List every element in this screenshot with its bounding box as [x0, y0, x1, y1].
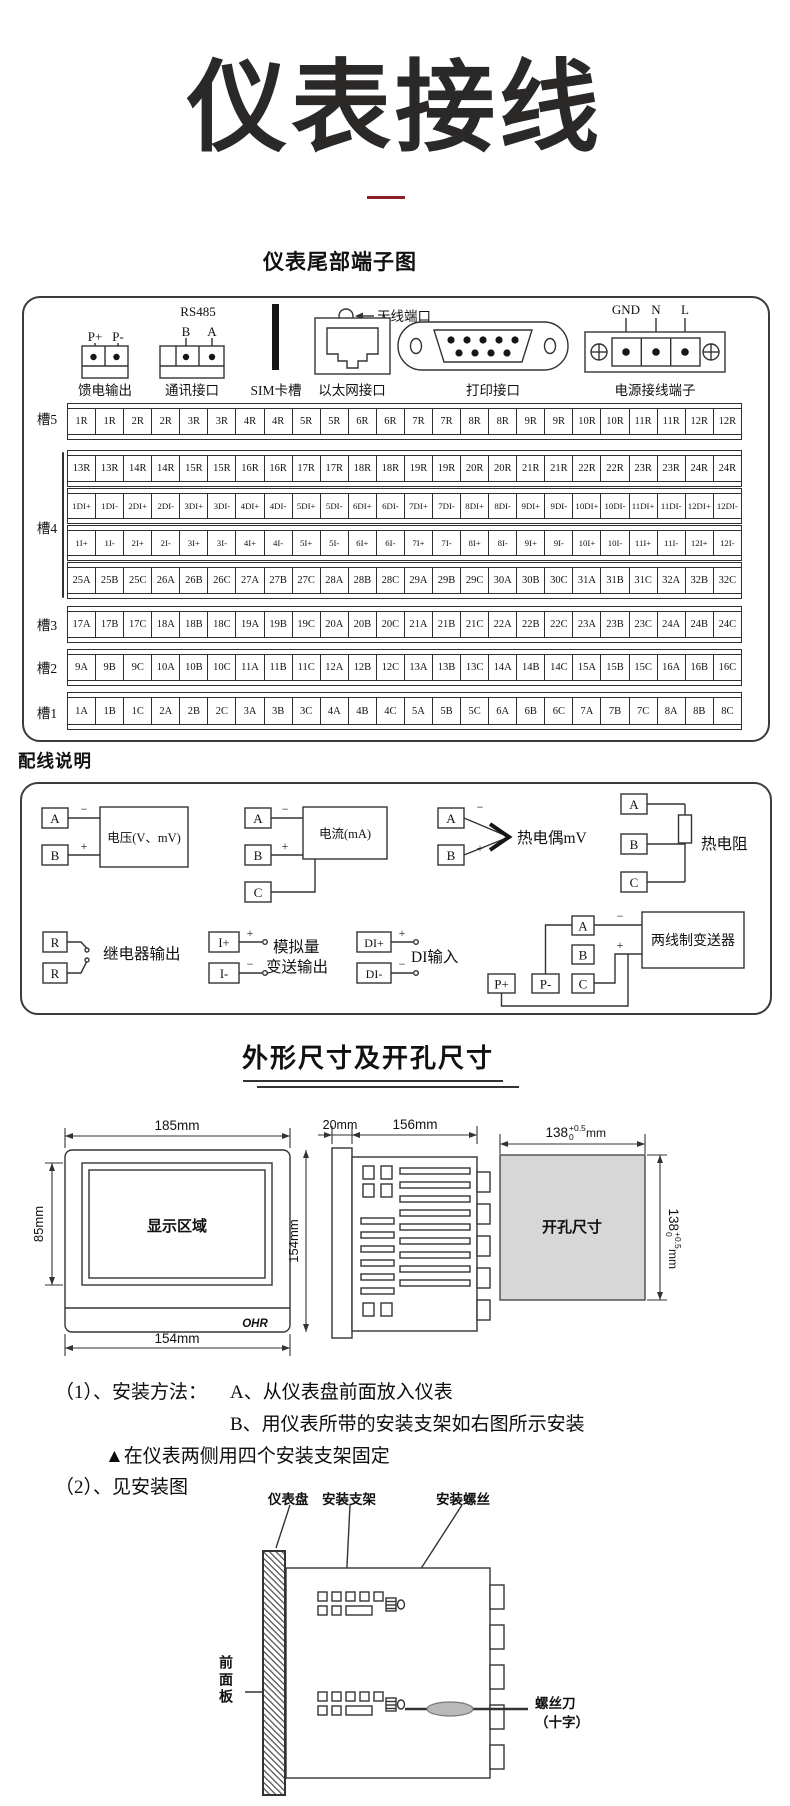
terminal-cell: 22A — [489, 612, 517, 637]
terminal-cell: 7R — [433, 409, 461, 434]
install-step1-prefix: （1）、安装方法： — [55, 1377, 207, 1404]
terminal-cell: 6C — [545, 698, 573, 724]
terminal-box-label: C — [630, 875, 639, 890]
install-step1-a: A、从仪表盘前面放入仪表 — [230, 1377, 453, 1404]
terminal-cell: 18C — [208, 612, 236, 637]
terminal-box-label: I+ — [218, 936, 229, 950]
terminal-cell: 1A — [68, 698, 96, 724]
dimension-drawings: 显示区域 OHR 185mm 85mm 154mm 154mm 20m — [15, 1100, 775, 1362]
terminal-cell: 13R — [96, 456, 124, 481]
terminal-cell: 7DI- — [433, 494, 461, 518]
terminal-cell: 20R — [461, 456, 489, 481]
diagram-label: 两线制变送器 — [651, 933, 735, 949]
terminal-cell: 8A — [658, 698, 686, 724]
power-caption: 电源接线端子 — [615, 382, 696, 398]
terminal-cell: 2C — [208, 698, 236, 724]
terminal-cell: 1B — [96, 698, 124, 724]
terminal-cell: 20C — [377, 612, 405, 637]
terminal-cell: 3A — [236, 698, 264, 724]
rear-hooks — [490, 1585, 504, 1769]
terminal-cell: 24R — [686, 456, 714, 481]
terminal-cell: 17A — [68, 612, 96, 637]
terminal-cell: 6DI+ — [349, 494, 377, 518]
terminal-strip-slot3: 17A17B17C18A18B18C19A19B19C20A20B20C21A2… — [67, 606, 742, 643]
terminal-cell: 12C — [377, 655, 405, 680]
terminal-cell: 21A — [405, 612, 433, 637]
heading-underline — [243, 1080, 503, 1082]
terminal-cell: 17C — [124, 612, 152, 637]
terminal-cell: 2B — [180, 698, 208, 724]
terminal-cell: 13C — [461, 655, 489, 680]
terminal-cell: 9A — [68, 655, 96, 680]
terminal-cell: 2DI- — [152, 494, 180, 518]
sim-caption: SIM卡槽 — [250, 383, 301, 398]
terminal-cell: 14R — [124, 456, 152, 481]
pin-label: P- — [112, 329, 124, 344]
terminal-cell: 5DI- — [321, 494, 349, 518]
terminal-box-label: B — [51, 848, 60, 863]
terminal-cell: 7C — [630, 698, 658, 724]
terminal-cell: 11DI- — [658, 494, 686, 518]
terminal-cell: 15R — [208, 456, 236, 481]
terminal-box-label: DI- — [366, 967, 383, 981]
terminal-cell: 25A — [68, 568, 96, 593]
terminal-cell: 16A — [658, 655, 686, 680]
svg-text:138: 138 — [545, 1125, 568, 1140]
pin-label: P+ — [88, 329, 103, 344]
sim-slot — [272, 304, 279, 370]
flange-dimension: 20mm — [323, 1118, 358, 1132]
terminal-cell: 23C — [630, 612, 658, 637]
terminal-cell: 12I- — [714, 531, 741, 555]
terminal-cell: 13R — [68, 456, 96, 481]
terminal-cell: 21R — [545, 456, 573, 481]
terminal-cell: 13A — [405, 655, 433, 680]
terminal-cell: 6R — [377, 409, 405, 434]
terminal-cell: 26B — [180, 568, 208, 593]
brand-logo: OHR — [242, 1318, 268, 1330]
terminal-cell: 6B — [517, 698, 545, 724]
terminal-cell: 11R — [630, 409, 658, 434]
terminal-box-label: B — [579, 948, 588, 963]
ethernet-caption: 以太网接口 — [318, 382, 386, 398]
terminal-box-label: B — [254, 848, 263, 863]
terminal-cell: 10DI+ — [573, 494, 601, 518]
terminal-cell: 24C — [714, 612, 741, 637]
terminal-cell: 28A — [321, 568, 349, 593]
terminal-cell: 12I+ — [686, 531, 714, 555]
rtd-wiring-diagram: A B C 热电阻 — [621, 794, 748, 892]
terminal-cell: 12A — [321, 655, 349, 680]
terminal-cell: 19R — [433, 456, 461, 481]
terminal-cell: 10I+ — [573, 531, 601, 555]
cutout-label: 开孔尺寸 — [542, 1218, 602, 1236]
terminal-cell: 14B — [517, 655, 545, 680]
page: 仪表接线 仪表尾部端子图 P+ P- RS485 B A — [0, 0, 790, 1806]
terminal-box-label: B — [447, 848, 456, 863]
terminal-cell: 32C — [714, 568, 741, 593]
terminal-cell: 18R — [349, 456, 377, 481]
terminal-cell: 16R — [265, 456, 293, 481]
pin-label: L — [681, 302, 689, 317]
analog-output-wiring-diagram: I+ I- + − 模拟量 变送输出 — [209, 926, 328, 983]
terminal-cell: 10I- — [601, 531, 629, 555]
svg-text:0: 0 — [664, 1232, 674, 1237]
cutout-drawing: 开孔尺寸 138 +0.5 0 mm 138 +0.5 0 mm — [500, 1123, 683, 1300]
terminal-box-label: A — [446, 811, 456, 826]
terminal-cell: 19R — [405, 456, 433, 481]
terminal-cell: 9R — [545, 409, 573, 434]
terminal-cell: 22B — [517, 612, 545, 637]
page-title: 仪表接线 — [0, 48, 790, 168]
terminal-cell: 5R — [293, 409, 321, 434]
connector-captions: 馈电输出 通讯接口 SIM卡槽 以太网接口 打印接口 电源接线端子 — [78, 382, 696, 398]
feed-output-caption: 馈电输出 — [78, 383, 132, 398]
terminal-cell: 30B — [517, 568, 545, 593]
wiring-section-heading: 配线说明 — [18, 748, 92, 773]
terminal-cell: 12B — [349, 655, 377, 680]
terminal-cell: 21C — [461, 612, 489, 637]
power-connector: GND N L — [585, 302, 725, 372]
terminal-cell: 4A — [321, 698, 349, 724]
pin-label: N — [651, 302, 661, 317]
terminal-cell: 14A — [489, 655, 517, 680]
terminal-cell: 3DI- — [208, 494, 236, 518]
terminal-cell: 16R — [236, 456, 264, 481]
slot5-label: 槽5 — [28, 408, 66, 428]
terminal-cell: 12R — [714, 409, 741, 434]
terminal-cell: 2R — [152, 409, 180, 434]
diagram-label: 电流(mA) — [319, 827, 371, 841]
terminal-box-label: A — [253, 811, 263, 826]
terminal-cell: 24A — [658, 612, 686, 637]
diagram-label: 热电阻 — [701, 835, 748, 853]
terminal-cell: 30A — [489, 568, 517, 593]
terminal-cell: 23R — [630, 456, 658, 481]
terminal-cell: 17R — [293, 456, 321, 481]
cutout-top-dimension: 138 +0.5 0 mm — [545, 1123, 606, 1142]
terminal-cell: 2I+ — [124, 531, 152, 555]
width-dimension: 185mm — [154, 1118, 199, 1133]
terminal-cell: 24R — [714, 456, 741, 481]
terminal-cell: 7I+ — [405, 531, 433, 555]
protocol-label: RS485 — [180, 304, 215, 319]
polarity: + — [81, 839, 88, 853]
terminal-strip-slot4-row3: 1I+1I-2I+2I-3I+3I-4I+4I-5I+5I-6I+6I-7I+7… — [67, 525, 742, 561]
terminal-cell: 19A — [236, 612, 264, 637]
terminal-box-label: A — [50, 811, 60, 826]
terminal-cell: 4B — [349, 698, 377, 724]
terminal-cell: 9DI- — [545, 494, 573, 518]
terminal-cell: 15A — [573, 655, 601, 680]
slot1-label: 槽1 — [28, 702, 66, 722]
terminal-cell: 28B — [349, 568, 377, 593]
svg-text:mm: mm — [586, 1126, 606, 1140]
terminal-cell: 8R — [489, 409, 517, 434]
terminal-cell: 32A — [658, 568, 686, 593]
terminal-cell: 12R — [686, 409, 714, 434]
terminal-cell: 18A — [152, 612, 180, 637]
svg-text:138: 138 — [666, 1208, 681, 1231]
terminal-cell: 19C — [293, 612, 321, 637]
terminal-cell: 26C — [208, 568, 236, 593]
terminal-cell: 5I- — [321, 531, 349, 555]
terminal-cell: 22R — [601, 456, 629, 481]
polarity: − — [477, 800, 484, 814]
terminal-cell: 1R — [68, 409, 96, 434]
terminal-cell: 25B — [96, 568, 124, 593]
terminal-cell: 11I- — [658, 531, 686, 555]
terminal-cell: 1C — [124, 698, 152, 724]
polarity: + — [617, 938, 624, 952]
polarity: − — [81, 802, 88, 816]
terminal-cell: 4C — [377, 698, 405, 724]
install-note: ▲在仪表两侧用四个安装支架固定 — [105, 1441, 390, 1468]
terminal-cell: 32B — [686, 568, 714, 593]
diagram-label: DI输入 — [411, 948, 458, 966]
terminal-cell: 4DI- — [265, 494, 293, 518]
terminal-strip-slot4-row4: 25A25B25C26A26B26C27A27B27C28A28B28C29A2… — [67, 562, 742, 599]
ethernet-connector — [315, 318, 390, 374]
printer-connector — [398, 322, 568, 370]
svg-text:mm: mm — [666, 1249, 680, 1269]
terminal-cell: 7I- — [433, 531, 461, 555]
terminal-cell: 4R — [265, 409, 293, 434]
terminal-cell: 6I- — [377, 531, 405, 555]
terminal-cell: 29A — [405, 568, 433, 593]
terminal-cell: 3B — [265, 698, 293, 724]
terminal-cell: 12DI+ — [686, 494, 714, 518]
terminal-cell: 3I+ — [180, 531, 208, 555]
terminal-cell: 4DI+ — [236, 494, 264, 518]
terminal-cell: 3R — [208, 409, 236, 434]
terminal-cell: 8DI+ — [461, 494, 489, 518]
terminal-strip-slot4-row1: 13R13R14R14R15R15R16R16R17R17R18R18R19R1… — [67, 450, 742, 487]
svg-text:0: 0 — [569, 1132, 574, 1142]
terminal-box-label: A — [629, 797, 639, 812]
terminal-cell: 11DI+ — [630, 494, 658, 518]
terminal-cell: 20A — [321, 612, 349, 637]
terminal-cell: 23B — [601, 612, 629, 637]
terminal-cell: 10B — [180, 655, 208, 680]
terminal-section-heading: 仪表尾部端子图 — [140, 246, 540, 276]
bottom-width-dimension: 154mm — [154, 1331, 199, 1346]
screwdriver-label-line1: 螺丝刀 — [535, 1695, 576, 1711]
terminal-cell: 31C — [630, 568, 658, 593]
terminal-cell: 2DI+ — [124, 494, 152, 518]
terminal-cell: 25C — [124, 568, 152, 593]
terminal-cell: 10DI- — [601, 494, 629, 518]
terminal-box-label: A — [578, 919, 588, 934]
terminal-cell: 7DI+ — [405, 494, 433, 518]
polarity: + — [399, 926, 406, 940]
terminal-cell: 18R — [377, 456, 405, 481]
terminal-cell: 24B — [686, 612, 714, 637]
terminal-cell: 21R — [517, 456, 545, 481]
comm-connector: RS485 B A — [160, 304, 224, 378]
terminal-cell: 11B — [265, 655, 293, 680]
installation-diagram: 螺丝刀 （十字） — [190, 1480, 605, 1802]
terminal-cell: 8DI- — [489, 494, 517, 518]
terminal-cell: 4I+ — [236, 531, 264, 555]
side-view-drawing: 154mm 20mm 156mm — [286, 1117, 490, 1338]
terminal-cell: 3I- — [208, 531, 236, 555]
terminal-cell: 9I+ — [517, 531, 545, 555]
terminal-cell: 8I+ — [461, 531, 489, 555]
terminal-cell: 27A — [236, 568, 264, 593]
terminal-cell: 1I+ — [68, 531, 96, 555]
display-area-label: 显示区域 — [147, 1217, 207, 1235]
terminal-cell: 28C — [377, 568, 405, 593]
terminal-cell: 5C — [461, 698, 489, 724]
terminal-cell: 31B — [601, 568, 629, 593]
current-wiring-diagram: A B C − + 电流(mA) — [245, 802, 387, 902]
printer-caption: 打印接口 — [466, 382, 520, 398]
pin-label: A — [207, 324, 217, 339]
terminal-box-label: C — [254, 885, 263, 900]
terminal-cell: 6A — [489, 698, 517, 724]
terminal-cell: 5DI+ — [293, 494, 321, 518]
install-step2: （2）、见安装图 — [55, 1472, 188, 1499]
terminal-cell: 7A — [573, 698, 601, 724]
terminal-box-label: C — [579, 977, 588, 992]
polarity: + — [477, 841, 484, 855]
terminal-cell: 5I+ — [293, 531, 321, 555]
terminal-cell: 10A — [152, 655, 180, 680]
comm-caption: 通讯接口 — [165, 382, 219, 398]
terminal-cell: 19B — [265, 612, 293, 637]
slot2-label: 槽2 — [28, 657, 66, 677]
terminal-strip-slot5: 1R1R2R2R3R3R4R4R5R5R6R6R7R7R8R8R9R9R10R1… — [67, 403, 742, 440]
polarity: − — [282, 802, 289, 816]
diagram-label: 电压(V、mV) — [107, 831, 181, 845]
terminal-cell: 1DI- — [96, 494, 124, 518]
diagram-label: 变送输出 — [266, 958, 328, 976]
terminal-cell: 16C — [714, 655, 741, 680]
terminal-cell: 4I- — [265, 531, 293, 555]
polarity: − — [399, 957, 406, 971]
terminal-cell: 3DI+ — [180, 494, 208, 518]
feed-output-connector: P+ P- — [82, 329, 128, 378]
terminal-cell: 23A — [573, 612, 601, 637]
terminal-cell: 31A — [573, 568, 601, 593]
terminal-box-label: I- — [220, 967, 228, 981]
terminal-cell: 17R — [321, 456, 349, 481]
terminal-cell: 10R — [573, 409, 601, 434]
terminal-cell: 3R — [180, 409, 208, 434]
screwdriver-label-line2: （十字） — [535, 1714, 589, 1730]
terminal-cell: 18B — [180, 612, 208, 637]
terminal-cell: 12DI- — [714, 494, 741, 518]
di-wiring-diagram: DI+ DI- + − DI输入 — [357, 926, 458, 983]
terminal-cell: 8B — [686, 698, 714, 724]
terminal-cell: 5B — [433, 698, 461, 724]
connector-diagram: P+ P- RS485 B A 天线端口 — [22, 296, 770, 400]
terminal-cell: 26A — [152, 568, 180, 593]
voltage-wiring-diagram: A B − + 电压(V、mV) — [42, 802, 188, 867]
heading-underline — [257, 1086, 519, 1088]
terminal-strip-slot2: 9A9B9C10A10B10C11A11B11C12A12B12C13A13B1… — [67, 649, 742, 686]
diagram-label: 继电器输出 — [103, 945, 181, 963]
terminal-strip-slot1: 1A1B1C2A2B2C3A3B3C4A4B4C5A5B5C6A6B6C7A7B… — [67, 692, 742, 730]
terminal-cell: 1R — [96, 409, 124, 434]
terminal-cell: 9DI+ — [517, 494, 545, 518]
terminal-cell: 29B — [433, 568, 461, 593]
terminal-cell: 15B — [601, 655, 629, 680]
slot3-label: 槽3 — [28, 614, 66, 634]
terminal-cell: 13B — [433, 655, 461, 680]
screen-height-dimension: 85mm — [31, 1206, 46, 1242]
terminal-cell: 10R — [601, 409, 629, 434]
terminal-cell: 9R — [517, 409, 545, 434]
terminal-cell: 21B — [433, 612, 461, 637]
side-height-dimension: 154mm — [286, 1219, 301, 1262]
diagram-label: 热电偶mV — [517, 829, 588, 847]
terminal-cell: 9C — [124, 655, 152, 680]
terminal-cell: 17B — [96, 612, 124, 637]
transmitter-wiring-diagram: A B C P+ P- − + 两线制变送器 — [488, 909, 744, 1006]
terminal-cell: 2A — [152, 698, 180, 724]
terminal-box-label: R — [51, 966, 60, 981]
terminal-cell: 6I+ — [349, 531, 377, 555]
terminal-cell: 4R — [236, 409, 264, 434]
terminal-cell: 11C — [293, 655, 321, 680]
terminal-cell: 11A — [236, 655, 264, 680]
mounting-hooks — [477, 1172, 490, 1320]
terminal-cell: 23R — [658, 456, 686, 481]
terminal-cell: 15R — [180, 456, 208, 481]
terminal-box-label: B — [630, 837, 639, 852]
terminal-box-label: P- — [540, 977, 552, 992]
polarity: + — [247, 926, 254, 940]
depth-dimension: 156mm — [392, 1117, 437, 1132]
terminal-cell: 11I+ — [630, 531, 658, 555]
instrument-body — [286, 1568, 490, 1778]
terminal-cell: 9B — [96, 655, 124, 680]
terminal-cell: 11R — [658, 409, 686, 434]
accent-divider — [367, 196, 405, 199]
terminal-cell: 10C — [208, 655, 236, 680]
thermocouple-wiring-diagram: A B − + 热电偶mV — [438, 800, 588, 865]
terminal-cell: 2R — [124, 409, 152, 434]
terminal-cell: 30C — [545, 568, 573, 593]
terminal-cell: 14R — [152, 456, 180, 481]
terminal-cell: 8R — [461, 409, 489, 434]
relay-wiring-diagram: R R 继电器输出 — [43, 932, 181, 983]
terminal-cell: 27B — [265, 568, 293, 593]
terminal-cell: 7B — [601, 698, 629, 724]
terminal-cell: 8C — [714, 698, 741, 724]
terminal-cell: 5R — [321, 409, 349, 434]
pin-label: B — [182, 324, 191, 339]
front-view-drawing: 显示区域 OHR 185mm 85mm 154mm — [31, 1118, 290, 1356]
terminal-cell: 22R — [573, 456, 601, 481]
diagram-label: 模拟量 — [273, 938, 320, 956]
cutout-side-dimension: 138 +0.5 0 mm — [664, 1208, 683, 1269]
polarity: − — [617, 909, 624, 923]
pin-label: GND — [612, 302, 640, 317]
polarity: − — [247, 957, 254, 971]
terminal-cell: 7R — [405, 409, 433, 434]
terminal-cell: 22C — [545, 612, 573, 637]
terminal-strip-slot4-row2: 1DI+1DI-2DI+2DI-3DI+3DI-4DI+4DI-5DI+5DI-… — [67, 488, 742, 524]
terminal-cell: 6DI- — [377, 494, 405, 518]
slot4-label: 槽4 — [28, 517, 66, 537]
terminal-cell: 2I- — [152, 531, 180, 555]
polarity: + — [282, 839, 289, 853]
terminal-cell: 6R — [349, 409, 377, 434]
terminal-cell: 29C — [461, 568, 489, 593]
